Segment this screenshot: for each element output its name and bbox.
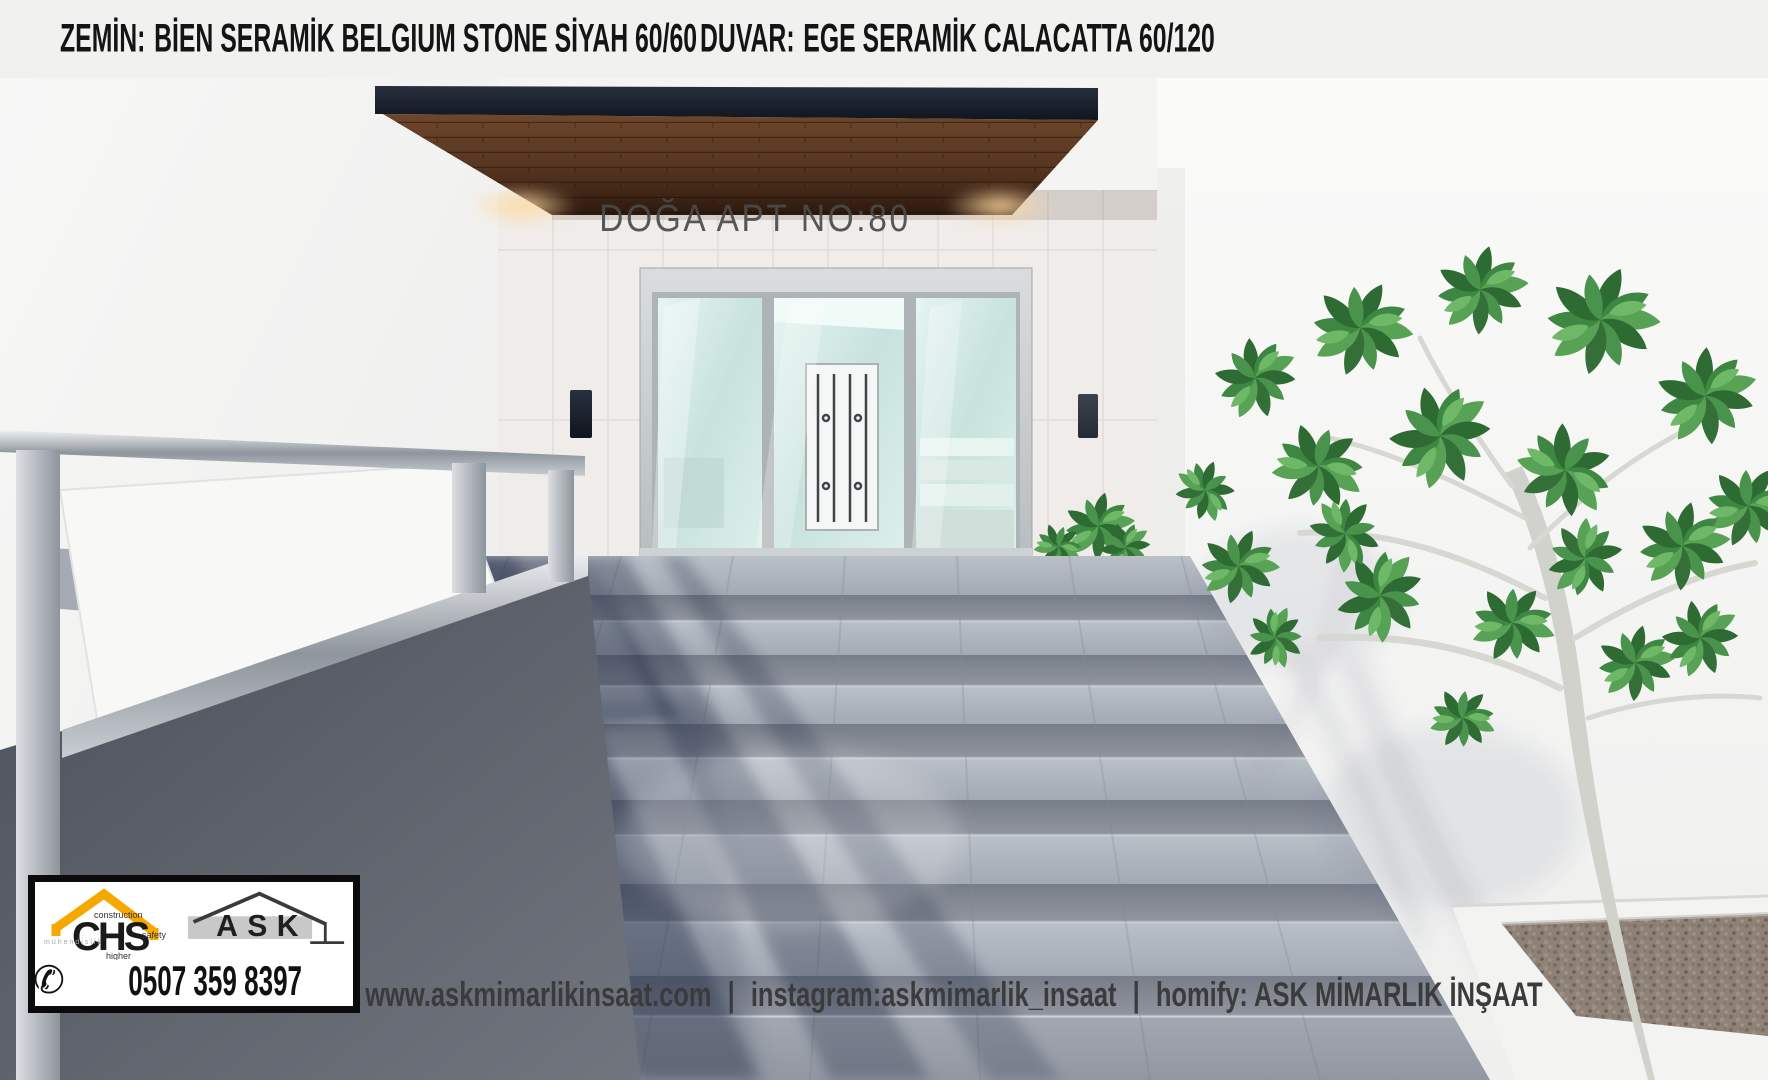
contact-line: www.askmimarlikinsaat.com | instagram:as… (365, 976, 1542, 1015)
chs-word-safety: safety (142, 930, 167, 940)
instagram-text: instagram:askmimarlik_insaat (751, 976, 1117, 1014)
floor-material-value: BİEN SERAMİK BELGIUM STONE SİYAH 60/60 (154, 17, 697, 62)
phone-number: 0507 359 8397 (128, 957, 302, 1005)
wall-material-value: EGE SERAMİK CALACATTA 60/120 (803, 17, 1215, 62)
logo-row: CHS construction safety higher mühendisl… (42, 884, 346, 958)
building-sign: DOĞA APT NO:80 (548, 198, 962, 241)
ask-letters: ASK (216, 910, 308, 943)
separator: | (728, 976, 735, 1014)
phone-icon: ✆ (33, 962, 65, 1000)
wall-material-label: DUVAR: (700, 17, 795, 62)
materials-header: ZEMİN: BİEN SERAMİK BELGIUM STONE SİYAH … (0, 0, 1768, 78)
website-text: www.askmimarlikinsaat.com (365, 976, 711, 1014)
ask-logo: ASK (186, 888, 346, 954)
chs-logo: CHS construction safety higher mühendisl… (42, 882, 178, 960)
chs-word-construction: construction (94, 910, 143, 920)
wall-sconce-left (570, 390, 592, 438)
contact-info-box: CHS construction safety higher mühendisl… (28, 875, 360, 1013)
architectural-render-poster: ZEMİN: BİEN SERAMİK BELGIUM STONE SİYAH … (0, 0, 1768, 1080)
glass-entrance-door (640, 268, 1032, 568)
floor-material-spec: ZEMİN: BİEN SERAMİK BELGIUM STONE SİYAH … (60, 17, 697, 62)
wall-material-spec: DUVAR: EGE SERAMİK CALACATTA 60/120 (700, 17, 1215, 62)
phone-row: ✆ 0507 359 8397 (33, 958, 355, 1004)
floor-material-label: ZEMİN: (60, 17, 145, 62)
separator: | (1133, 976, 1140, 1014)
wall-sconce-right (1078, 394, 1098, 438)
chs-word-left: mühendislik (44, 939, 103, 946)
homify-text: homify: ASK MİMARLIK İNŞAAT (1156, 976, 1543, 1014)
